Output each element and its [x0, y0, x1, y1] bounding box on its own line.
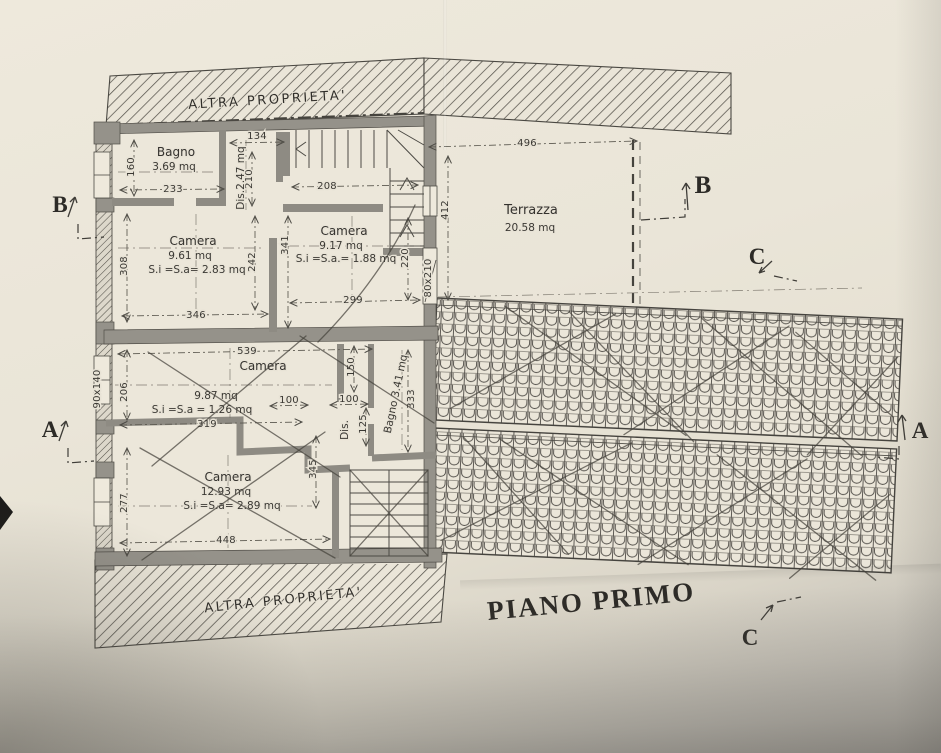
room-terrazza-area: 20.58 mq [505, 222, 555, 234]
dim-341: 341 [280, 235, 291, 255]
dim-233: 233 [163, 184, 183, 195]
door-size-note: 80x210 [423, 259, 434, 298]
room-bagno-top-name: Bagno [157, 145, 195, 159]
room-camera-s-name: Camera [204, 470, 251, 484]
room-camera-ne-area: 9.17 mq [319, 240, 363, 252]
dim-125: 125 [358, 414, 369, 434]
page-title: PIANO PRIMO [486, 576, 697, 626]
section-c-bottom: C [742, 625, 759, 650]
dim-448: 448 [216, 535, 236, 546]
room-camera-nw-name: Camera [169, 234, 216, 248]
hatched-band-bottom: ALTRA PROPRIETA' [95, 552, 447, 648]
dim-308: 308 [119, 256, 130, 276]
dim-299: 299 [343, 295, 363, 306]
wall-right-exterior [424, 115, 436, 568]
dim-208: 208 [317, 181, 337, 192]
section-line-b [438, 288, 862, 297]
room-camera-mid-name: Camera [239, 359, 286, 373]
dim-242: 242 [247, 252, 258, 272]
section-a-left: A [42, 417, 59, 442]
room-camera-s-net: S.i =S.a= 2.89 mq [183, 500, 280, 512]
floor-plan-drawing: ALTRA PROPRIETA' ALTRA PROPRIETA' [0, 0, 941, 753]
dim-134: 134 [247, 131, 267, 142]
wall-corner-nw [94, 122, 120, 144]
terrazza-open-edge [633, 140, 640, 305]
dim-346: 346 [186, 310, 206, 321]
room-camera-nw-net: S.i =S.a= 2.83 mq [148, 264, 245, 276]
dim-220: 220 [400, 248, 411, 268]
scanned-floor-plan-page: ALTRA PROPRIETA' ALTRA PROPRIETA' [0, 0, 941, 753]
dim-206: 206 [119, 382, 130, 402]
hatched-band-top-left: ALTRA PROPRIETA' [106, 58, 424, 126]
room-bagno-top-area: 3.69 mq [152, 161, 196, 173]
dim-319: 319 [197, 419, 217, 430]
section-b-left: B [52, 192, 67, 217]
room-camera-nw-area: 9.61 mq [168, 250, 212, 262]
roof-tiles [425, 298, 902, 583]
room-terrazza-name: Terrazza [503, 203, 558, 218]
section-c-right: C [749, 244, 766, 269]
room-dis-top-label: Dis.2.47 mq [235, 146, 247, 209]
scan-artifact-mark [0, 496, 13, 530]
window-size-note: 90x140 [92, 370, 103, 409]
dim-539: 539 [237, 346, 257, 357]
room-camera-ne-name: Camera [320, 224, 367, 238]
dim-277: 277 [119, 493, 130, 513]
room-camera-ne-net: S.i =S.a.= 1.88 mq [296, 253, 397, 265]
section-a-right: A [912, 418, 929, 443]
hatched-band-top-right [424, 58, 731, 134]
dim-160: 160 [126, 157, 137, 177]
dim-496: 496 [517, 138, 537, 149]
section-b-right: B [695, 172, 712, 199]
dim-100-b: 100 [339, 394, 359, 405]
room-dis-mid-label: Dis. [339, 420, 351, 440]
dim-412: 412 [440, 200, 451, 220]
dim-100-a: 100 [279, 395, 299, 406]
